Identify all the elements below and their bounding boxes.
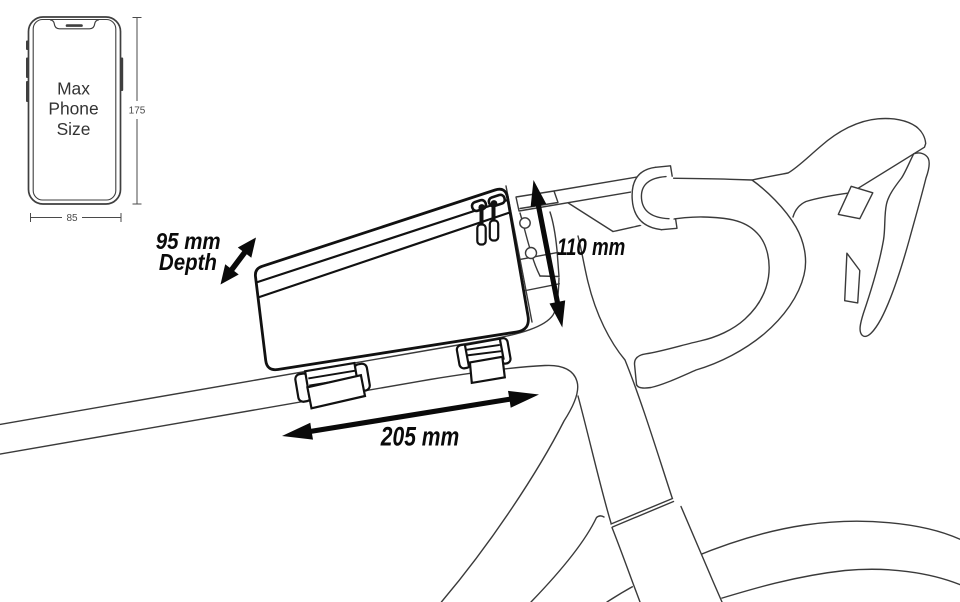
svg-text:Size: Size [57, 119, 91, 139]
svg-text:110 mm: 110 mm [557, 234, 625, 261]
svg-text:Depth: Depth [159, 249, 217, 275]
svg-text:85: 85 [66, 213, 78, 224]
svg-text:205 mm: 205 mm [380, 422, 459, 452]
svg-text:Phone: Phone [48, 99, 98, 119]
svg-text:Max: Max [57, 78, 90, 98]
svg-text:175: 175 [129, 106, 146, 117]
